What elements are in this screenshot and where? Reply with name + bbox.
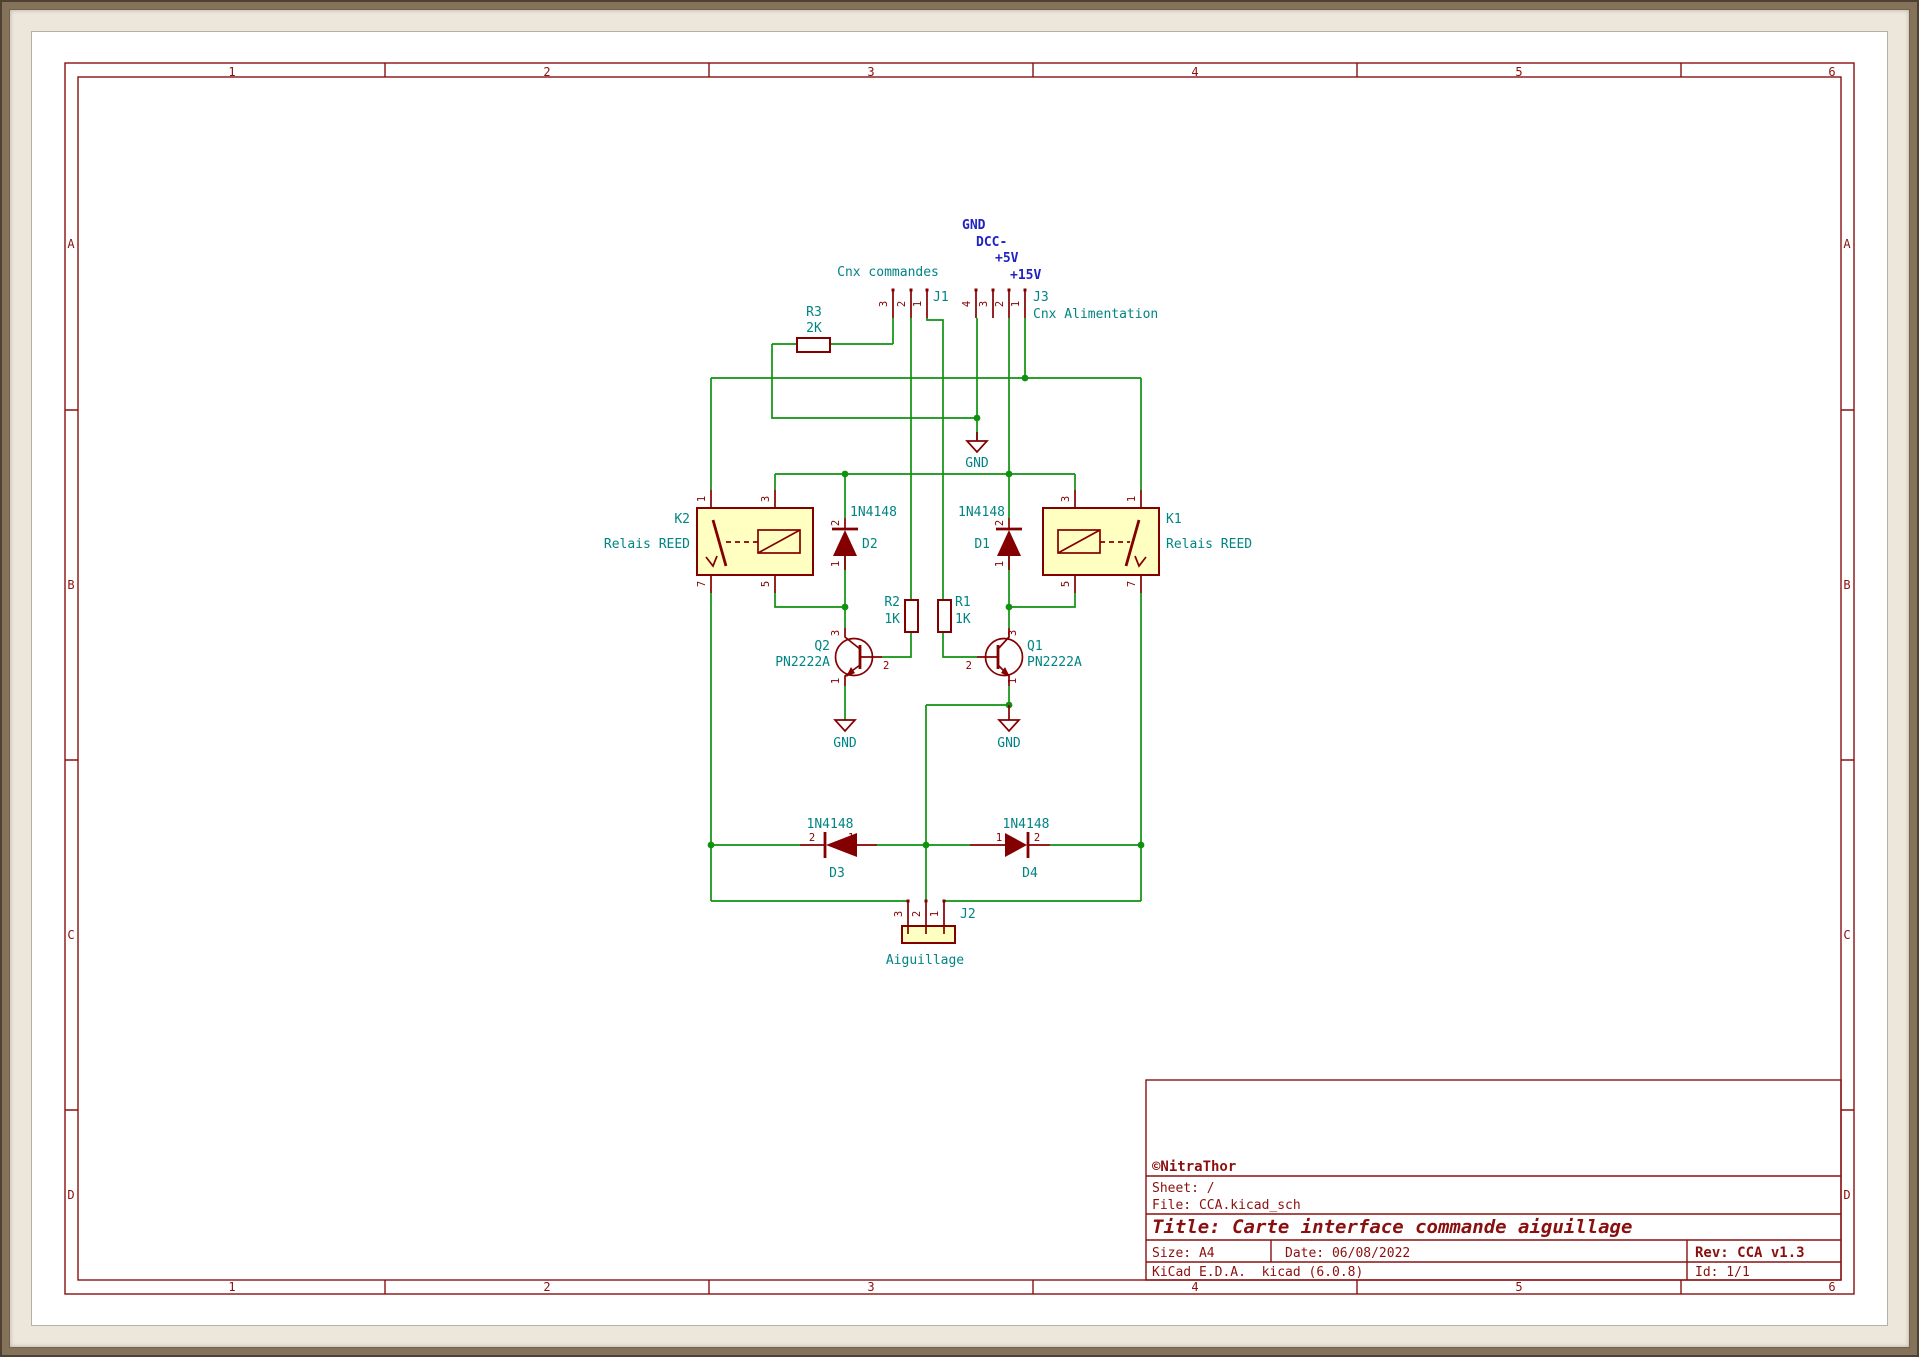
k1-value-label: Relais REED bbox=[1166, 537, 1252, 552]
k2-pin-number: 3 bbox=[760, 496, 772, 502]
title-block-date: Date: 06/08/2022 bbox=[1285, 1246, 1410, 1261]
j3-pin-number: 4 bbox=[961, 301, 973, 307]
zone-row: B bbox=[1843, 578, 1850, 592]
r1-ref-label: R1 bbox=[955, 595, 971, 610]
relay-k1[interactable]: 3 1 5 7 K1 Relais REED bbox=[1043, 490, 1252, 593]
title-block-rev: Rev: CCA v1.3 bbox=[1695, 1245, 1805, 1261]
d2-value-label: 1N4148 bbox=[850, 505, 897, 520]
title-block-size: Size: A4 bbox=[1152, 1246, 1215, 1261]
zone-col: 4 bbox=[1191, 65, 1198, 79]
j3-pin-number: 2 bbox=[994, 301, 1006, 307]
k2-value-label: Relais REED bbox=[604, 537, 690, 552]
d4-pin-number: 2 bbox=[1034, 832, 1040, 844]
resistor-r3[interactable]: R3 2K bbox=[797, 305, 830, 352]
connector-j2[interactable]: 3 2 1 J2 Aiguillage bbox=[886, 900, 976, 969]
zone-row: C bbox=[1843, 928, 1850, 942]
zone-col: 6 bbox=[1828, 65, 1835, 79]
r1-value-label: 1K bbox=[955, 612, 971, 627]
title-block-sheet: Sheet: / bbox=[1152, 1181, 1215, 1196]
zone-col: 4 bbox=[1191, 1280, 1198, 1294]
k1-pin-number: 3 bbox=[1060, 496, 1072, 502]
j1-pin-number: 2 bbox=[896, 301, 908, 307]
zone-col: 5 bbox=[1515, 1280, 1522, 1294]
d3-ref-label: D3 bbox=[829, 866, 845, 881]
j3-ref-label: J3 bbox=[1033, 290, 1049, 305]
k2-ref-label: K2 bbox=[674, 512, 690, 527]
d4-ref-label: D4 bbox=[1022, 866, 1038, 881]
gnd-label: GND bbox=[833, 736, 857, 751]
diode-d1[interactable]: 2 1 1N4148 D1 bbox=[958, 505, 1022, 570]
q1-pin-number: 3 bbox=[1007, 630, 1019, 636]
connector-j3[interactable]: 4 3 2 1 J3 Cnx Alimentation bbox=[961, 289, 1158, 323]
title-block-title: Title: Carte interface commande aiguilla… bbox=[1152, 1216, 1632, 1238]
zone-row: B bbox=[67, 578, 74, 592]
k1-pin-number: 7 bbox=[1126, 581, 1138, 587]
net-label-gnd[interactable]: GND bbox=[962, 218, 986, 233]
wires[interactable] bbox=[711, 318, 1141, 901]
zone-row: C bbox=[67, 928, 74, 942]
zone-col: 1 bbox=[228, 1280, 235, 1294]
d3-pin-number: 2 bbox=[809, 832, 815, 844]
d2-ref-label: D2 bbox=[862, 537, 878, 552]
j1-value-label: Cnx commandes bbox=[837, 265, 939, 280]
gnd-symbol-top[interactable]: GND bbox=[965, 432, 989, 471]
j3-value-label: Cnx Alimentation bbox=[1033, 307, 1158, 322]
k1-ref-label: K1 bbox=[1166, 512, 1182, 527]
zone-col: 3 bbox=[867, 65, 874, 79]
q2-pin-number: 2 bbox=[883, 660, 889, 672]
gnd-symbol-q1[interactable]: GND bbox=[997, 705, 1021, 751]
net-label-plus15v[interactable]: +15V bbox=[1010, 268, 1041, 283]
q2-pin-number: 1 bbox=[830, 678, 842, 684]
d4-value-label: 1N4148 bbox=[1003, 817, 1050, 832]
gnd-label: GND bbox=[965, 456, 989, 471]
zone-row: D bbox=[67, 1188, 74, 1202]
transistor-q1[interactable]: 3 2 1 Q1 PN2222A bbox=[966, 628, 1082, 686]
title-block-id: Id: 1/1 bbox=[1695, 1265, 1750, 1280]
zone-row: A bbox=[1843, 237, 1851, 251]
gnd-symbol-q2[interactable]: GND bbox=[833, 719, 857, 751]
power-net-labels[interactable]: GND DCC- +5V +15V bbox=[962, 218, 1041, 283]
diode-d3[interactable]: 2 1 1N4148 D3 bbox=[800, 817, 877, 881]
r3-ref-label: R3 bbox=[806, 305, 822, 320]
connector-j1[interactable]: 3 2 1 J1 Cnx commandes bbox=[837, 265, 949, 318]
net-label-plus5v[interactable]: +5V bbox=[995, 251, 1019, 266]
title-block: ©NitraThor Sheet: / File: CCA.kicad_sch … bbox=[1146, 1080, 1841, 1280]
schematic-window: 1 2 3 4 5 6 1 2 3 4 5 6 A B C D A B C D bbox=[0, 0, 1919, 1357]
schematic-canvas[interactable]: 1 2 3 4 5 6 1 2 3 4 5 6 A B C D A B C D bbox=[0, 0, 1919, 1357]
k2-pin-number: 7 bbox=[696, 581, 708, 587]
r3-value-label: 2K bbox=[806, 321, 822, 336]
q2-pin-number: 3 bbox=[830, 630, 842, 636]
diode-d2[interactable]: 2 1 1N4148 D2 bbox=[830, 505, 897, 570]
zone-col: 5 bbox=[1515, 65, 1522, 79]
zone-col: 1 bbox=[228, 65, 235, 79]
j3-pin-number: 3 bbox=[978, 301, 990, 307]
k2-pin-number: 1 bbox=[696, 496, 708, 502]
title-block-tool: KiCad E.D.A. kicad (6.0.8) bbox=[1152, 1265, 1363, 1280]
d1-ref-label: D1 bbox=[974, 537, 990, 552]
j2-pin-number: 2 bbox=[911, 911, 923, 917]
j2-value-label: Aiguillage bbox=[886, 953, 964, 968]
j1-pin-number: 1 bbox=[912, 301, 924, 307]
j2-pin-number: 1 bbox=[929, 911, 941, 917]
q2-ref-label: Q2 bbox=[814, 639, 830, 654]
j2-ref-label: J2 bbox=[960, 907, 976, 922]
k1-pin-number: 5 bbox=[1060, 581, 1072, 587]
j3-pin-number: 1 bbox=[1010, 301, 1022, 307]
q1-pin-number: 2 bbox=[966, 660, 972, 672]
zone-row: A bbox=[67, 237, 75, 251]
zone-col: 6 bbox=[1828, 1280, 1835, 1294]
zone-col: 3 bbox=[867, 1280, 874, 1294]
k2-pin-number: 5 bbox=[760, 581, 772, 587]
j2-pin-number: 3 bbox=[893, 911, 905, 917]
net-label-dcc-minus[interactable]: DCC- bbox=[976, 235, 1007, 250]
resistor-r2[interactable]: R2 1K bbox=[884, 595, 918, 632]
zone-row: D bbox=[1843, 1188, 1850, 1202]
q1-ref-label: Q1 bbox=[1027, 639, 1043, 654]
d1-pin-number: 2 bbox=[994, 520, 1006, 526]
title-block-file: File: CCA.kicad_sch bbox=[1152, 1198, 1301, 1213]
q1-pin-number: 1 bbox=[1007, 678, 1019, 684]
resistor-r1[interactable]: R1 1K bbox=[938, 595, 971, 632]
d3-value-label: 1N4148 bbox=[807, 817, 854, 832]
d1-pin-number: 1 bbox=[994, 561, 1006, 567]
title-block-company: ©NitraThor bbox=[1152, 1159, 1236, 1175]
diode-d4[interactable]: 1 2 1N4148 D4 bbox=[970, 817, 1050, 881]
r2-value-label: 1K bbox=[884, 612, 900, 627]
q2-value-label: PN2222A bbox=[775, 655, 830, 670]
d2-pin-number: 2 bbox=[830, 520, 842, 526]
sheet-border: 1 2 3 4 5 6 1 2 3 4 5 6 A B C D A B C D bbox=[65, 63, 1854, 1294]
k1-pin-number: 1 bbox=[1126, 496, 1138, 502]
j1-ref-label: J1 bbox=[933, 290, 949, 305]
transistor-q2[interactable]: 3 2 1 Q2 PN2222A bbox=[775, 628, 889, 686]
zone-col: 2 bbox=[543, 65, 550, 79]
r2-ref-label: R2 bbox=[884, 595, 900, 610]
d3-pin-number: 1 bbox=[848, 832, 854, 844]
relay-k2[interactable]: 1 3 7 5 K2 Relais REED bbox=[604, 490, 813, 593]
q1-value-label: PN2222A bbox=[1027, 655, 1082, 670]
j1-pin-number: 3 bbox=[878, 301, 890, 307]
d2-pin-number: 1 bbox=[830, 561, 842, 567]
d1-value-label: 1N4148 bbox=[958, 505, 1005, 520]
zone-col: 2 bbox=[543, 1280, 550, 1294]
zone-labels: 1 2 3 4 5 6 1 2 3 4 5 6 A B C D A B C D bbox=[67, 65, 1851, 1294]
gnd-label: GND bbox=[997, 736, 1021, 751]
d4-pin-number: 1 bbox=[996, 832, 1002, 844]
